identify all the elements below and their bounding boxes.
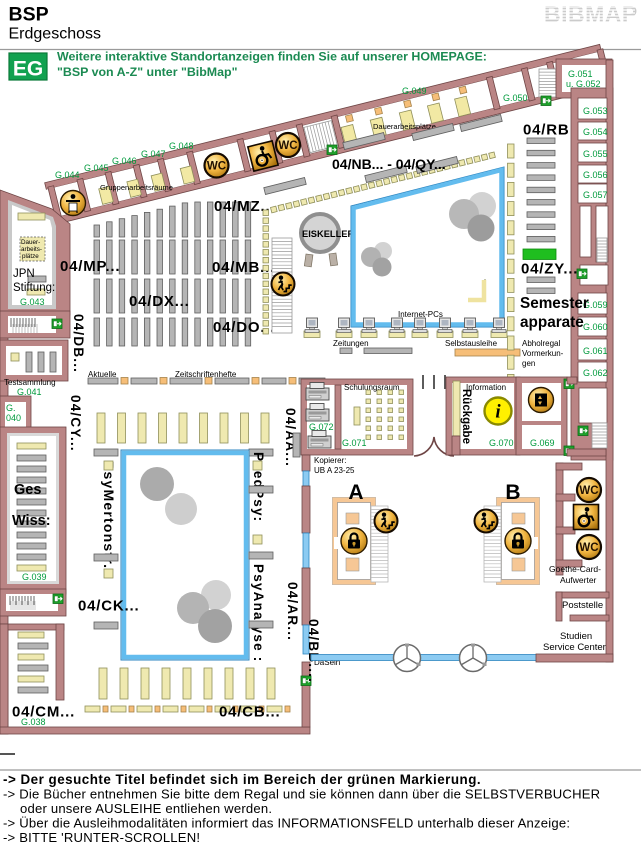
svg-text:G.051: G.051 [568, 69, 593, 79]
svg-text:Stiftung:: Stiftung: [13, 282, 55, 294]
svg-text:Gruppenarbeitsräume: Gruppenarbeitsräume [100, 183, 173, 192]
svg-text:Aufwerter: Aufwerter [560, 575, 597, 585]
svg-text:G.053: G.053 [583, 106, 608, 116]
svg-text:G.043: G.043 [20, 297, 45, 307]
svg-text:Poststelle: Poststelle [562, 600, 603, 611]
svg-text:Vormerkun-: Vormerkun- [522, 349, 564, 358]
svg-text:G.044: G.044 [55, 170, 80, 180]
svg-text:EISKELLER: EISKELLER [302, 229, 354, 239]
svg-text:Selbstausleihe: Selbstausleihe [445, 339, 498, 348]
svg-text:Dauer-: Dauer- [21, 239, 40, 246]
svg-text:G.061: G.061 [583, 346, 608, 356]
svg-text:gen: gen [522, 359, 535, 368]
svg-text:PsyAnalyse :: PsyAnalyse : [251, 564, 266, 662]
svg-text:G.047: G.047 [141, 149, 166, 159]
svg-text:"BSP von A-Z" unter "BibMap": "BSP von A-Z" unter "BibMap" [57, 65, 238, 79]
svg-text:-> Die Bücher entnehmen Sie bi: -> Die Bücher entnehmen Sie bitte dem Re… [3, 787, 600, 802]
svg-text:B: B [505, 481, 520, 504]
svg-text:Goethe-Card-: Goethe-Card- [549, 564, 601, 574]
svg-text:Semester: Semester [520, 295, 589, 312]
svg-text:apparate: apparate [520, 314, 584, 331]
svg-text:Kopierer:: Kopierer: [314, 456, 346, 465]
svg-text:oder unsere AUSLEIHE entliehen: oder unsere AUSLEIHE entliehen werden. [20, 801, 272, 816]
svg-text:04/RB: 04/RB [523, 122, 570, 139]
svg-text:Ges: Ges [14, 482, 41, 498]
svg-text:G.056: G.056 [583, 170, 608, 180]
svg-text:Abholregal: Abholregal [522, 339, 560, 348]
svg-text:G.049: G.049 [402, 86, 427, 96]
svg-text:G.054: G.054 [583, 127, 608, 137]
svg-text:04/ZY...: 04/ZY... [521, 261, 578, 278]
svg-text:G.041: G.041 [17, 387, 42, 397]
svg-text:plätze: plätze [22, 253, 39, 260]
svg-text:Wiss:: Wiss: [12, 513, 51, 529]
svg-text:G.048: G.048 [169, 141, 194, 151]
svg-text:04/AR...: 04/AR... [285, 582, 300, 641]
svg-text:G.062: G.062 [583, 368, 608, 378]
svg-text:-> Über die Ausleihmodalitäten: -> Über die Ausleihmodalitäten informier… [3, 816, 570, 831]
svg-text:04/CY...: 04/CY... [68, 395, 83, 452]
svg-text:Weitere interaktive Standortan: Weitere interaktive Standortanzeigen fin… [57, 50, 487, 64]
svg-text:G.057: G.057 [583, 190, 608, 200]
svg-text:G.038: G.038 [21, 717, 46, 727]
svg-text:Rückgabe: Rückgabe [460, 389, 472, 444]
svg-text:G.045: G.045 [84, 163, 109, 173]
svg-text:u. G.052: u. G.052 [566, 79, 601, 89]
svg-text:G.055: G.055 [583, 149, 608, 159]
svg-text:G.: G. [6, 403, 16, 413]
svg-text:G.070: G.070 [489, 438, 514, 448]
svg-text:arbeits-: arbeits- [21, 246, 42, 253]
svg-text:Erdgeschoss: Erdgeschoss [9, 26, 102, 43]
svg-text:UB A 23-25: UB A 23-25 [314, 466, 355, 475]
svg-text:04/NB... - 04/QY...: 04/NB... - 04/QY... [332, 156, 446, 172]
svg-text:04/CK...: 04/CK... [78, 598, 139, 615]
svg-text:Service Center: Service Center [543, 642, 606, 653]
svg-text:Zeitungen: Zeitungen [333, 339, 369, 348]
svg-text:04/DB...: 04/DB... [71, 314, 86, 373]
svg-text:BIBMAP: BIBMAP [544, 1, 638, 27]
svg-text:EG: EG [13, 58, 43, 81]
svg-text:Testsammlung: Testsammlung [4, 378, 56, 387]
svg-text:04/CB...: 04/CB... [219, 704, 280, 721]
svg-text:04/MP...: 04/MP... [60, 258, 120, 275]
svg-text:04/DX...: 04/DX... [129, 293, 190, 310]
svg-text:G.072: G.072 [309, 422, 334, 432]
svg-text:04/BB....: 04/BB.... [306, 619, 321, 683]
svg-text:BSP: BSP [9, 4, 49, 26]
svg-text:G.071: G.071 [342, 438, 367, 448]
svg-text:G.039: G.039 [22, 572, 47, 582]
svg-text:Aktuelle: Aktuelle [88, 370, 117, 379]
svg-text:Zeitschriftenhefte: Zeitschriftenhefte [175, 370, 237, 379]
svg-text:Studien: Studien [560, 631, 592, 642]
svg-text:G.046: G.046 [112, 156, 137, 166]
svg-text:G.060: G.060 [583, 322, 608, 332]
svg-text:JPN: JPN [13, 268, 35, 280]
svg-text:G.050: G.050 [503, 93, 528, 103]
svg-text:-> BITTE 'RUNTER-SCROLLEN!: -> BITTE 'RUNTER-SCROLLEN! [3, 830, 200, 845]
svg-text:PsyMertonstr.: PsyMertonstr. [101, 461, 117, 569]
svg-text:A: A [348, 481, 363, 504]
svg-text:-> Der gesuchte Titel befindet: -> Der gesuchte Titel befindet sich im B… [3, 772, 481, 787]
svg-text:G.069: G.069 [530, 438, 555, 448]
svg-text:040: 040 [6, 413, 21, 423]
